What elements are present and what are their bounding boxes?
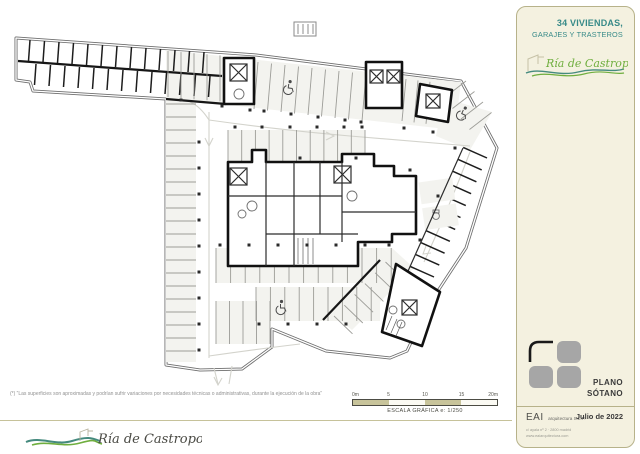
- entrance-ramp: [294, 22, 316, 36]
- firm-abbr: EAI: [526, 412, 544, 423]
- elevator-core-top-right: [366, 62, 402, 108]
- firm-contact: www.eaiarquitectura.com: [526, 433, 586, 439]
- project-title-line1: 34 VIVIENDAS,: [532, 18, 623, 28]
- title-block-panel: 34 VIVIENDAS, GARAJES Y TRASTEROS Ría de…: [516, 6, 635, 448]
- corner-outline-icon: [530, 342, 553, 362]
- elevator-core-top: [224, 58, 254, 104]
- brand-name-text: Ría de Castropol: [97, 432, 202, 447]
- scale-tick: 0m: [352, 392, 359, 398]
- scale-tick: 10: [422, 392, 428, 398]
- scale-tick: 20m: [488, 392, 498, 398]
- project-title-line2: GARAJES Y TRASTEROS: [532, 30, 623, 39]
- scale-tick: 5: [387, 392, 390, 398]
- sheet-name-line2: SÓTANO: [587, 389, 623, 399]
- stair-core-corner: [416, 84, 452, 122]
- brand-name-text: Ría de Castropol: [545, 57, 628, 70]
- scale-bar-segments: [352, 399, 498, 406]
- scale-tick: 15: [459, 392, 465, 398]
- brand-logo-footer: Ría de Castropol: [22, 424, 202, 454]
- firm-logo-squares: [525, 336, 585, 395]
- sheet-date: Julio de 2022: [576, 412, 623, 421]
- footer-divider: [0, 420, 512, 421]
- sheet-name: PLANO SÓTANO: [587, 378, 623, 399]
- graphic-scale-bar: 0m 5 10 15 20m ESCALA GRÁFICA e: 1/250: [352, 392, 498, 414]
- plan-sheet: (*) “Las superficies son aproximadas y p…: [0, 0, 640, 454]
- project-title: 34 VIVIENDAS, GARAJES Y TRASTEROS: [532, 18, 623, 39]
- brand-logo-header: Ría de Castropol: [520, 47, 628, 92]
- floor-plan: [0, 0, 512, 420]
- scale-tick-labels: 0m 5 10 15 20m: [352, 392, 498, 399]
- surface-disclaimer-note: (*) “Las superficies son aproximadas y p…: [10, 391, 340, 399]
- sheet-name-line1: PLANO: [587, 378, 623, 388]
- floor-plan-drawing: [0, 0, 512, 420]
- scale-caption: ESCALA GRÁFICA e: 1/250: [352, 408, 498, 414]
- house-sketch-icon: [528, 55, 544, 71]
